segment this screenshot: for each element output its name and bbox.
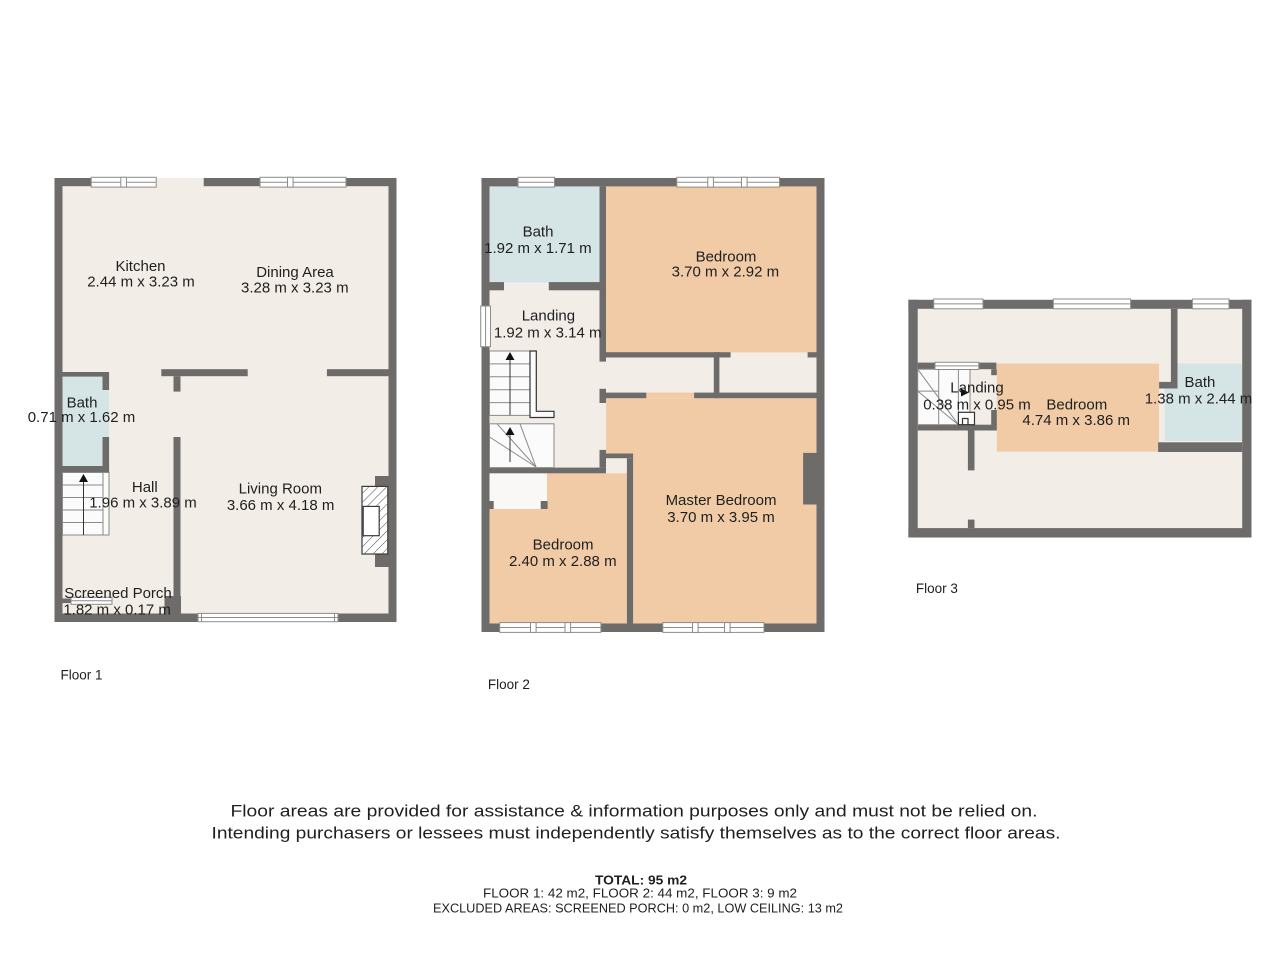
svg-text:EXCLUDED AREAS: SCREENED PORCH: EXCLUDED AREAS: SCREENED PORCH: 0 m2, LO…: [433, 901, 843, 916]
svg-text:Bath: Bath: [523, 224, 554, 241]
svg-text:1.38 m x 2.44 m: 1.38 m x 2.44 m: [1145, 390, 1253, 407]
svg-text:2.44 m x 3.23 m: 2.44 m x 3.23 m: [87, 274, 195, 291]
svg-text:3.28 m x 3.23 m: 3.28 m x 3.23 m: [241, 279, 349, 296]
svg-text:Bedroom: Bedroom: [1046, 396, 1107, 413]
svg-text:Intending purchasers or lessee: Intending purchasers or lessees must ind…: [212, 824, 1061, 843]
svg-text:1.92 m x 3.14 m: 1.92 m x 3.14 m: [494, 324, 602, 341]
svg-text:1.82 m x 0.17 m: 1.82 m x 0.17 m: [63, 602, 171, 619]
svg-text:Floor 3: Floor 3: [916, 581, 958, 596]
svg-text:Floor areas are provided for a: Floor areas are provided for assistance …: [231, 802, 1038, 821]
svg-text:2.40 m x 2.88 m: 2.40 m x 2.88 m: [509, 553, 617, 570]
svg-text:Dining Area: Dining Area: [256, 264, 334, 281]
svg-text:1.96 m x 3.89 m: 1.96 m x 3.89 m: [89, 494, 197, 511]
svg-text:1.92 m x 1.71 m: 1.92 m x 1.71 m: [484, 240, 592, 257]
svg-text:FLOOR 1: 42 m2, FLOOR 2: 44 m2: FLOOR 1: 42 m2, FLOOR 2: 44 m2, FLOOR 3:…: [483, 886, 797, 901]
svg-text:3.70 m x 3.95 m: 3.70 m x 3.95 m: [667, 509, 775, 526]
svg-text:Landing: Landing: [522, 308, 575, 325]
svg-text:Hall: Hall: [132, 479, 158, 496]
svg-text:0.38 m x 0.95 m: 0.38 m x 0.95 m: [923, 396, 1031, 413]
svg-text:Bedroom: Bedroom: [533, 537, 594, 554]
svg-text:0.71 m x 1.62 m: 0.71 m x 1.62 m: [28, 409, 136, 426]
svg-text:3.66 m x 4.18 m: 3.66 m x 4.18 m: [227, 497, 335, 514]
svg-text:4.74 m x 3.86 m: 4.74 m x 3.86 m: [1022, 412, 1130, 429]
svg-text:Bath: Bath: [1184, 374, 1215, 391]
svg-text:Floor 1: Floor 1: [61, 667, 103, 682]
svg-text:3.70 m x 2.92 m: 3.70 m x 2.92 m: [672, 264, 780, 281]
svg-text:Screened Porch: Screened Porch: [64, 585, 172, 602]
svg-text:Kitchen: Kitchen: [115, 258, 165, 275]
svg-text:Living Room: Living Room: [239, 481, 322, 498]
svg-text:Master Bedroom: Master Bedroom: [666, 492, 777, 509]
svg-text:Landing: Landing: [950, 379, 1003, 396]
svg-text:Floor 2: Floor 2: [488, 677, 530, 692]
